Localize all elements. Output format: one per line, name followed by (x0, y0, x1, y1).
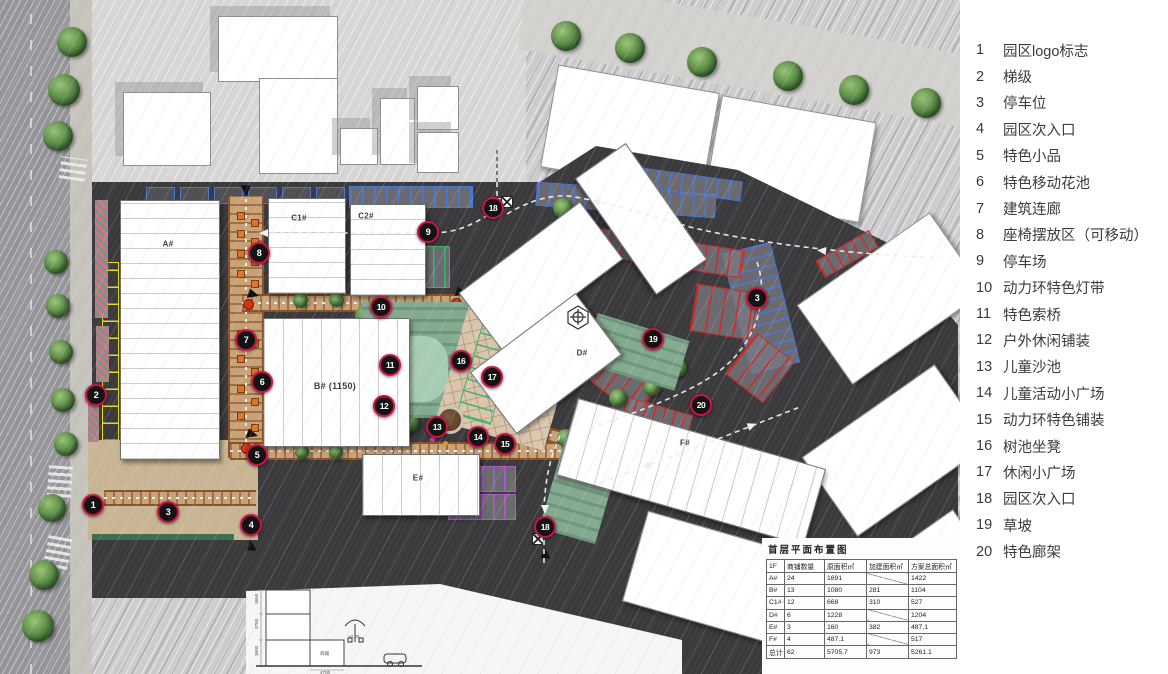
legend-item-number: 4 (976, 121, 1003, 137)
legend-panel: 1园区logo标志2梯级3停车位4园区次入口5特色小品6特色移动花池7建筑连廊8… (960, 0, 1168, 674)
legend-item-13: 13儿童沙池 (976, 354, 1168, 380)
plan-marker-20: 20 (690, 394, 712, 416)
table-row: A#2416911422 (767, 573, 957, 585)
table-cell: A# (767, 573, 785, 585)
table-cell: D# (767, 609, 785, 621)
legend-item-label: 户外休闲铺装 (1003, 330, 1090, 351)
legend-item-label: 座椅摆放区（可移动） (1003, 224, 1148, 245)
legend-item-15: 15动力环特色铺装 (976, 406, 1168, 432)
legend-item-number: 7 (976, 201, 1003, 217)
plan-marker-15: 15 (494, 433, 516, 455)
legend-item-label: 草坡 (1003, 515, 1032, 536)
legend-item-label: 建筑连廊 (1003, 198, 1061, 219)
legend-item-number: 17 (976, 464, 1003, 480)
table-cell: C1# C2# (767, 597, 785, 609)
table-cell: 281 (867, 585, 909, 597)
plan-marker-16: 16 (450, 350, 472, 372)
plan-marker-11: 11 (379, 354, 401, 376)
legend-item-label: 园区次入口 (1003, 488, 1076, 509)
table-row: F#4487.1517 (767, 633, 957, 645)
area-table: 首层平面布置图 1F商铺数量原面积㎡加建面积㎡方案总面积㎡A#241691142… (762, 538, 960, 674)
plan-marker-10: 10 (370, 296, 392, 318)
legend-item-number: 15 (976, 412, 1003, 428)
legend-item-19: 19草坡 (976, 512, 1168, 538)
plan-marker-18: 18 (482, 197, 504, 219)
section-dim-2: 3750 (254, 618, 259, 629)
plan-marker-4: 4 (240, 514, 262, 536)
table-row: B#1310802811104 (767, 585, 957, 597)
legend-item-number: 5 (976, 148, 1003, 164)
site-plan-page: A# C1# C2# B# (1150) D# E# F# (0, 0, 1168, 674)
legend-item-7: 7建筑连廊 (976, 195, 1168, 221)
plan-marker-3: 3 (746, 287, 768, 309)
legend-item-6: 6特色移动花池 (976, 169, 1168, 195)
section-room-label: 商铺 (320, 650, 330, 657)
legend-item-label: 休闲小广场 (1003, 462, 1076, 483)
legend-item-number: 11 (976, 306, 1003, 322)
section-dim-1: 3650 (254, 593, 259, 604)
legend-item-label: 儿童沙池 (1003, 356, 1061, 377)
legend-item-label: 特色小品 (1003, 145, 1061, 166)
table-cell: 总计 (767, 646, 785, 659)
plan-marker-19: 19 (642, 328, 664, 350)
plan-marker-12: 12 (373, 395, 395, 417)
table-cell: 5705.7 (825, 646, 867, 659)
legend-item-3: 3停车位 (976, 90, 1168, 116)
table-cell: 382 (867, 621, 909, 633)
table-cell (867, 609, 909, 621)
plan-marker-3: 3 (157, 501, 179, 523)
table-cell (867, 573, 909, 585)
legend-item-label: 停车场 (1003, 251, 1047, 272)
table-cell: 1204 (909, 609, 957, 621)
plan-marker-8: 8 (248, 242, 270, 264)
table-cell: 1691 (825, 573, 867, 585)
legend-item-17: 17休闲小广场 (976, 459, 1168, 485)
legend-item-number: 3 (976, 95, 1003, 111)
table-cell: F# (767, 633, 785, 645)
table-cell: 668 (825, 597, 867, 609)
table-cell: B# (767, 585, 785, 597)
legend-item-number: 9 (976, 253, 1003, 269)
master-plan-drawing: A# C1# C2# B# (1150) D# E# F# (0, 0, 960, 674)
table-title: 首层平面布置图 (768, 542, 960, 556)
table-cell: 487.1 (909, 621, 957, 633)
legend-item-2: 2梯级 (976, 63, 1168, 89)
legend-item-label: 停车位 (1003, 92, 1047, 113)
legend-item-4: 4园区次入口 (976, 116, 1168, 142)
plan-marker-14: 14 (467, 426, 489, 448)
table-row: D#612281204 (767, 609, 957, 621)
table-header: 原面积㎡ (825, 560, 867, 573)
legend-item-1: 1园区logo标志 (976, 37, 1168, 63)
table-row: C1# C2#12668310527 (767, 597, 957, 609)
section-dim-3: 3600 (254, 645, 259, 656)
legend-item-number: 12 (976, 332, 1003, 348)
legend-item-20: 20特色廊架 (976, 538, 1168, 564)
table-cell: 1080 (825, 585, 867, 597)
legend-item-label: 梯级 (1003, 66, 1032, 87)
legend-item-16: 16树池坐凳 (976, 433, 1168, 459)
table-cell: 527 (909, 597, 957, 609)
legend-item-9: 9停车场 (976, 248, 1168, 274)
area-schedule-table: 1F商铺数量原面积㎡加建面积㎡方案总面积㎡A#2416911422B#13108… (766, 559, 957, 659)
table-header: 1F (767, 560, 785, 573)
legend-item-12: 12户外休闲铺装 (976, 327, 1168, 353)
table-header: 商铺数量 (785, 560, 825, 573)
legend-item-number: 10 (976, 280, 1003, 296)
legend-item-number: 20 (976, 544, 1003, 560)
legend-item-number: 6 (976, 174, 1003, 190)
legend-item-label: 动力环特色铺装 (1003, 409, 1105, 430)
table-cell: 487.1 (825, 633, 867, 645)
table-cell: 1104 (909, 585, 957, 597)
legend-item-number: 2 (976, 69, 1003, 85)
table-cell: 4 (785, 633, 825, 645)
legend-item-number: 14 (976, 385, 1003, 401)
legend-item-18: 18园区次入口 (976, 486, 1168, 512)
plan-marker-18: 18 (534, 516, 556, 538)
section-dim-span: 4700 (320, 670, 331, 674)
legend-item-10: 10动力环特色灯带 (976, 275, 1168, 301)
table-cell: 6 (785, 609, 825, 621)
plan-marker-2: 2 (85, 384, 107, 406)
table-cell: E# (767, 621, 785, 633)
legend-item-label: 特色索桥 (1003, 304, 1061, 325)
legend-item-label: 特色移动花池 (1003, 172, 1090, 193)
table-cell: 1422 (909, 573, 957, 585)
table-row: 总计625705.79735261.1 (767, 646, 957, 659)
plan-marker-13: 13 (426, 416, 448, 438)
legend-item-number: 18 (976, 491, 1003, 507)
legend-item-number: 1 (976, 42, 1003, 58)
plan-marker-5: 5 (246, 444, 268, 466)
table-cell: 62 (785, 646, 825, 659)
legend-item-label: 动力环特色灯带 (1003, 277, 1105, 298)
table-cell: 3 (785, 621, 825, 633)
legend-item-label: 园区logo标志 (1003, 40, 1088, 61)
table-cell: 310 (867, 597, 909, 609)
plan-marker-6: 6 (251, 371, 273, 393)
legend-item-label: 儿童活动小广场 (1003, 383, 1105, 404)
legend-item-number: 19 (976, 517, 1003, 533)
legend-item-label: 特色廊架 (1003, 541, 1061, 562)
legend-item-11: 11特色索桥 (976, 301, 1168, 327)
legend-item-14: 14儿童活动小广场 (976, 380, 1168, 406)
table-cell: 973 (867, 646, 909, 659)
legend-item-5: 5特色小品 (976, 143, 1168, 169)
legend-item-number: 13 (976, 359, 1003, 375)
table-cell: 5261.1 (909, 646, 957, 659)
legend-item-number: 8 (976, 227, 1003, 243)
plan-marker-1: 1 (82, 494, 104, 516)
table-header: 加建面积㎡ (867, 560, 909, 573)
plan-marker-7: 7 (235, 329, 257, 351)
table-cell: 517 (909, 633, 957, 645)
legend-item-label: 园区次入口 (1003, 119, 1076, 140)
legend-item-label: 树池坐凳 (1003, 436, 1061, 457)
table-cell: 13 (785, 585, 825, 597)
plan-marker-17: 17 (481, 366, 503, 388)
section-drawing: 3650 3750 3600 4700 商铺 ±0.00 (252, 586, 427, 674)
table-row: E#3160382487.1 (767, 621, 957, 633)
table-cell: 24 (785, 573, 825, 585)
plan-marker-9: 9 (417, 221, 439, 243)
legend-item-number: 16 (976, 438, 1003, 454)
table-header: 方案总面积㎡ (909, 560, 957, 573)
table-cell: 160 (825, 621, 867, 633)
table-cell (867, 633, 909, 645)
legend-item-8: 8座椅摆放区（可移动） (976, 222, 1168, 248)
table-cell: 1228 (825, 609, 867, 621)
table-cell: 12 (785, 597, 825, 609)
